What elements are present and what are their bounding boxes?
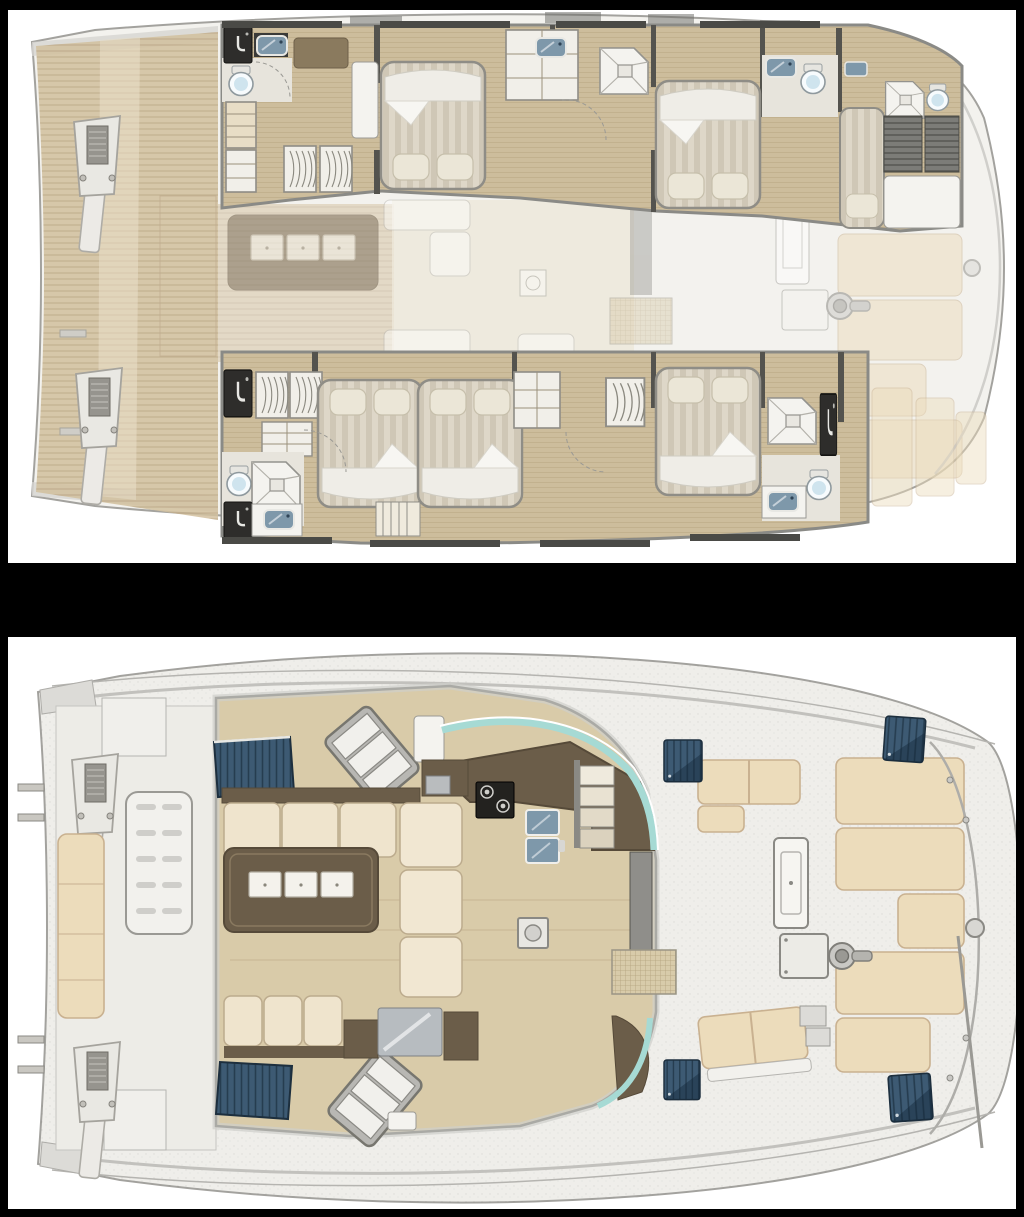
lower-deck-plan <box>8 10 1016 563</box>
owner-bed <box>381 62 485 189</box>
sliding-door <box>630 852 652 950</box>
coffee-table <box>224 848 378 932</box>
deck-hatch-small <box>518 918 548 948</box>
main-deck-drawing <box>18 653 1016 1202</box>
main-deck-plan <box>8 637 1016 1209</box>
companionway-stairs <box>574 760 614 848</box>
guest-bed-port-fwd <box>656 368 760 495</box>
cockpit-table <box>774 838 808 928</box>
main-deck-panel <box>8 637 1016 1209</box>
hatch-2 <box>888 1073 933 1122</box>
teak-aft-deck <box>36 32 218 520</box>
transom-lounger <box>126 792 192 934</box>
ghost-saloon <box>218 200 672 364</box>
saloon <box>214 686 676 1149</box>
lower-deck-drawing <box>32 12 1004 547</box>
aft-bench-cushion <box>58 834 104 1018</box>
tinted-window-bottom <box>216 1062 292 1119</box>
hatch-3 <box>664 740 702 782</box>
cooktop-icon <box>476 782 514 818</box>
cockpit-grate <box>612 950 676 994</box>
lower-deck-panel <box>8 10 1016 563</box>
guest-bed-fwd <box>656 81 760 208</box>
guest-bed-aft-2 <box>418 380 522 507</box>
hatch-1 <box>883 716 926 763</box>
stern-cleats <box>18 784 44 1073</box>
brochure-image <box>0 0 1024 1217</box>
forestay-fitting <box>966 919 984 937</box>
guest-bed-aft-1 <box>318 380 422 507</box>
hatch-4 <box>664 1060 700 1100</box>
